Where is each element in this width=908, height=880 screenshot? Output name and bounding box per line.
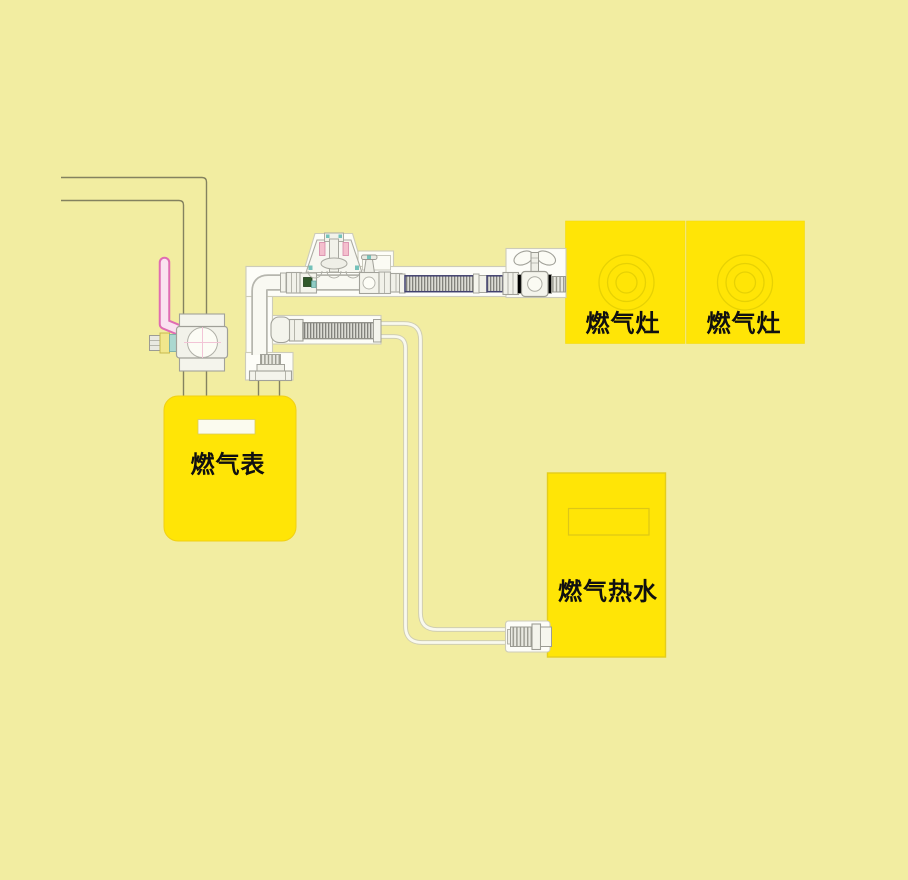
piping-artwork [0, 0, 908, 880]
water-heater-box [548, 473, 666, 657]
elbow-collar [281, 273, 287, 292]
water-heater-label: 燃气热水 [558, 572, 658, 607]
background [0, 0, 908, 880]
stove-left-label: 燃气灶 [586, 303, 661, 338]
stove-inlet-nipple [552, 277, 566, 293]
gas-meter-label: 燃气表 [191, 444, 266, 479]
union-fitting-b [379, 272, 402, 294]
heater-inlet-fitting [506, 621, 552, 652]
meter-display-window [198, 420, 255, 435]
stove-right-label: 燃气灶 [707, 303, 782, 338]
diagram-canvas: 燃气表 燃气灶 燃气灶 燃气热水 [0, 0, 908, 880]
filter-valve-icon [300, 273, 317, 293]
union-fitting-a [287, 273, 302, 294]
hose-coupling-nut [503, 273, 519, 295]
flex-hose-top [400, 274, 504, 293]
